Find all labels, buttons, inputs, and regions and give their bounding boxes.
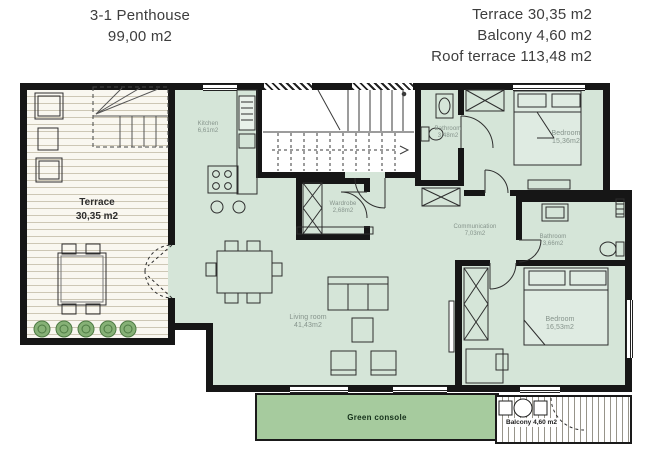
wall-segment: [168, 83, 175, 245]
wall-segment: [415, 180, 464, 186]
wall-segment: [516, 260, 632, 266]
window: [520, 386, 560, 393]
floor-plan-page: 3-1 Penthouse 99,00 m2 Terrace 30,35 m2 …: [0, 0, 662, 455]
summary-balcony: Balcony 4,60 m2: [431, 25, 592, 46]
living-room-label: Living room41,43m2: [276, 314, 340, 330]
wall-segment: [464, 190, 485, 196]
bedroom2-label: Bedroom16,53m2: [532, 316, 588, 332]
bathroom2-label: Bathroom3,66m2: [528, 234, 578, 248]
bedroom1-label: Bedroom15,36m2: [538, 130, 594, 146]
wall-segment: [20, 338, 175, 345]
wall-segment: [603, 83, 610, 196]
wall-segment: [625, 190, 632, 392]
wall-segment: [415, 83, 421, 186]
wall-segment: [364, 226, 370, 240]
window: [290, 386, 348, 393]
terrace-area: 30,35 m2: [57, 210, 137, 224]
wall-segment: [516, 196, 522, 240]
window: [393, 386, 447, 393]
summary-terrace: Terrace 30,35 m2: [431, 4, 592, 25]
wall-segment: [296, 178, 302, 240]
window: [203, 84, 237, 91]
stair-skylight: [352, 83, 413, 90]
wall-segment: [385, 172, 421, 178]
wall-segment: [256, 83, 262, 178]
terrace-door-opening: [168, 245, 175, 298]
summary-roof-terrace: Roof terrace 113,48 m2: [431, 46, 592, 67]
window: [626, 300, 633, 358]
stair-skylight: [264, 83, 312, 90]
wall-segment: [296, 234, 370, 240]
wall-segment: [296, 178, 370, 184]
window: [513, 84, 585, 91]
unit-area: 99,00 m2: [75, 26, 205, 47]
wardrobe-label: Wardrobe2,68m2: [318, 201, 368, 215]
wall-segment: [20, 83, 27, 345]
wall-segment: [458, 90, 464, 115]
wall-segment: [364, 178, 370, 192]
communication-label: Communication7,03m2: [438, 224, 512, 238]
green-console: Green console: [255, 393, 499, 441]
unit-header: 3-1 Penthouse 99,00 m2: [75, 5, 205, 47]
wall-segment: [455, 260, 462, 392]
wall-segment: [168, 298, 175, 345]
floor-living-south: [213, 330, 462, 385]
unit-title: 3-1 Penthouse: [75, 5, 205, 26]
balcony-label: Balcony 4,60 m2: [504, 418, 559, 427]
terrace-label: Terrace 30,35 m2: [57, 196, 137, 223]
wall-segment: [206, 323, 213, 392]
wall-segment: [516, 196, 625, 202]
terrace-name: Terrace: [57, 196, 137, 210]
green-console-label: Green console: [347, 413, 406, 422]
area-summary: Terrace 30,35 m2 Balcony 4,60 m2 Roof te…: [431, 4, 592, 67]
stair-core: [262, 90, 415, 172]
bathroom1-label: Bathroom3,48m2: [424, 126, 472, 140]
kitchen-label: Kitchen6,61m2: [184, 121, 232, 135]
